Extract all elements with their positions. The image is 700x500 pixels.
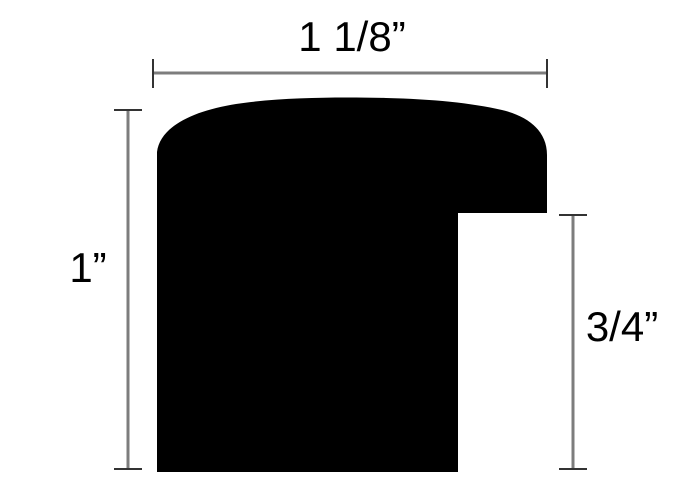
height-dimension-label: 1” [69, 247, 106, 289]
width-dimension-label: 1 1/8” [298, 16, 405, 58]
height-dimension [114, 110, 142, 469]
rabbet-dimension-label: 3/4” [586, 306, 658, 348]
rabbet-dimension [559, 215, 587, 469]
diagram-canvas: 1 1/8” 1” 3/4” [0, 0, 700, 500]
width-dimension [153, 59, 547, 88]
moulding-profile-shape [157, 98, 547, 472]
